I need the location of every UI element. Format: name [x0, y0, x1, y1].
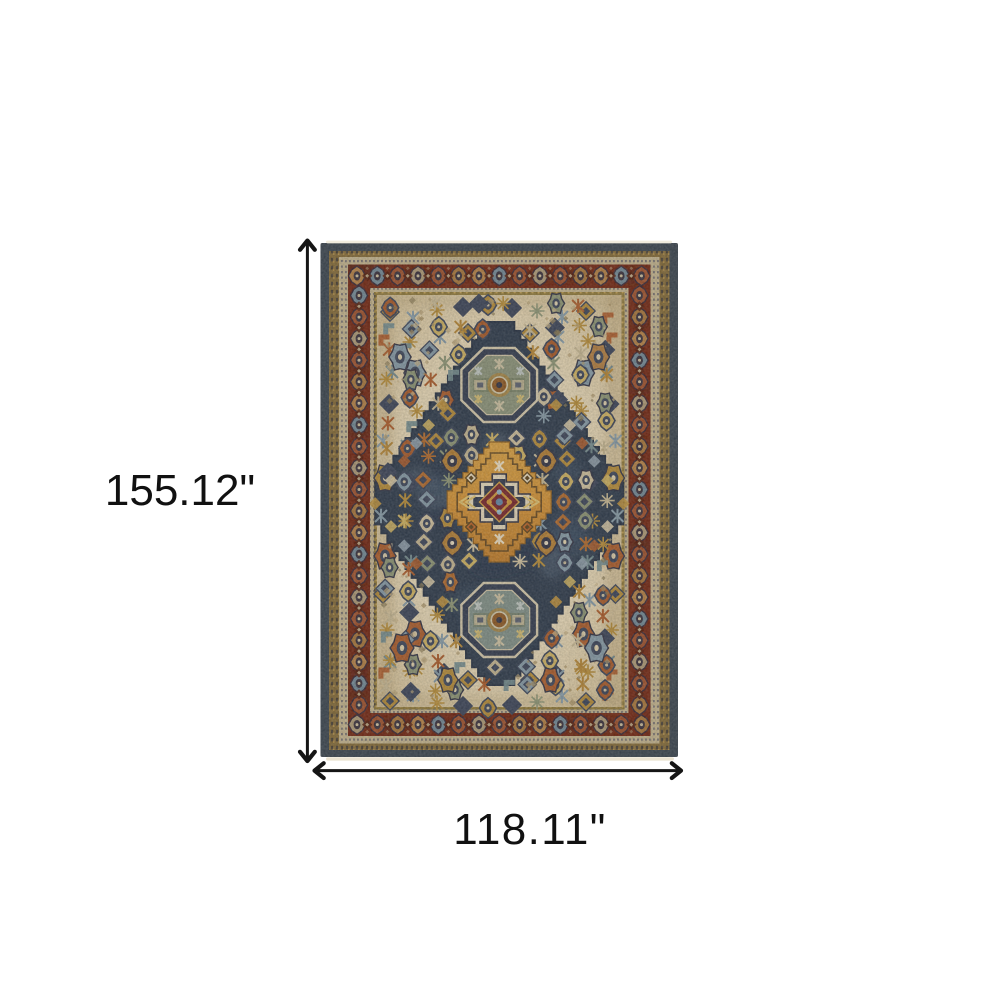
svg-text:118.11": 118.11"	[453, 805, 606, 854]
svg-text:155.12": 155.12"	[105, 466, 255, 515]
